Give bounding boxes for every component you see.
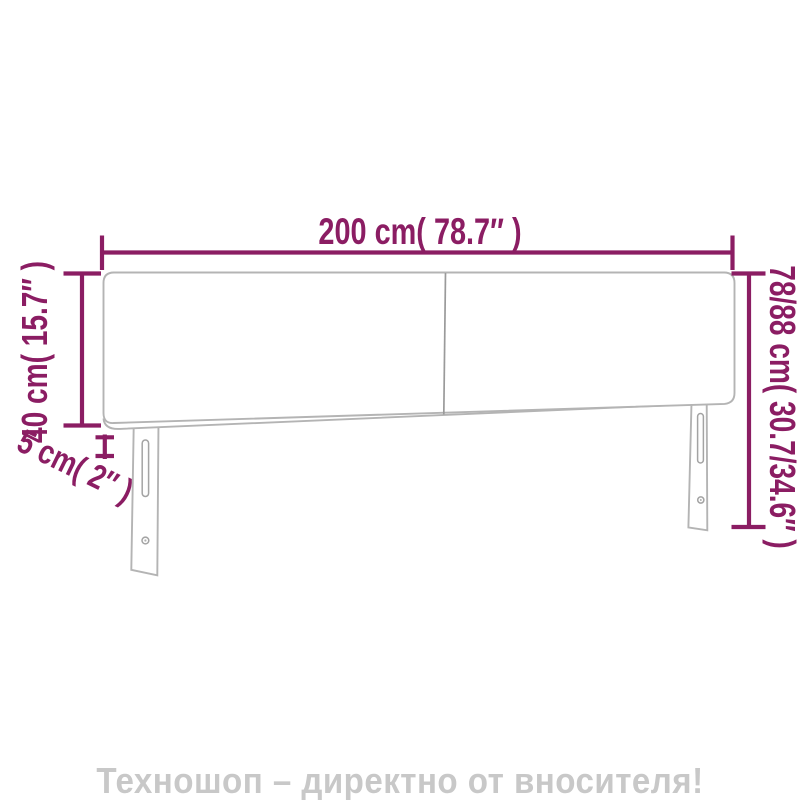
total-height-dimension-label: 78/88 cm( 30.7/34.6″ ) <box>757 235 800 578</box>
left-leg-screw-center <box>144 539 146 541</box>
watermark-text: Техношоп – директно от вносителя! <box>32 760 768 800</box>
panel-height-dimension-line <box>64 274 102 426</box>
leg-thickness-dimension-marker <box>96 435 115 460</box>
headboard-line-drawing <box>0 0 800 800</box>
right-leg-slot <box>698 414 704 464</box>
headboard-dimension-diagram: 200 cm( 78.7″ ) 40 cm( 15.7″ ) 5 cm( 2″ … <box>0 0 800 800</box>
leg-hardware <box>142 414 704 544</box>
headboard-panel <box>104 273 735 424</box>
width-dimension-label: 200 cm( 78.7″ ) <box>174 213 665 252</box>
right-leg-screw-center <box>700 499 702 501</box>
